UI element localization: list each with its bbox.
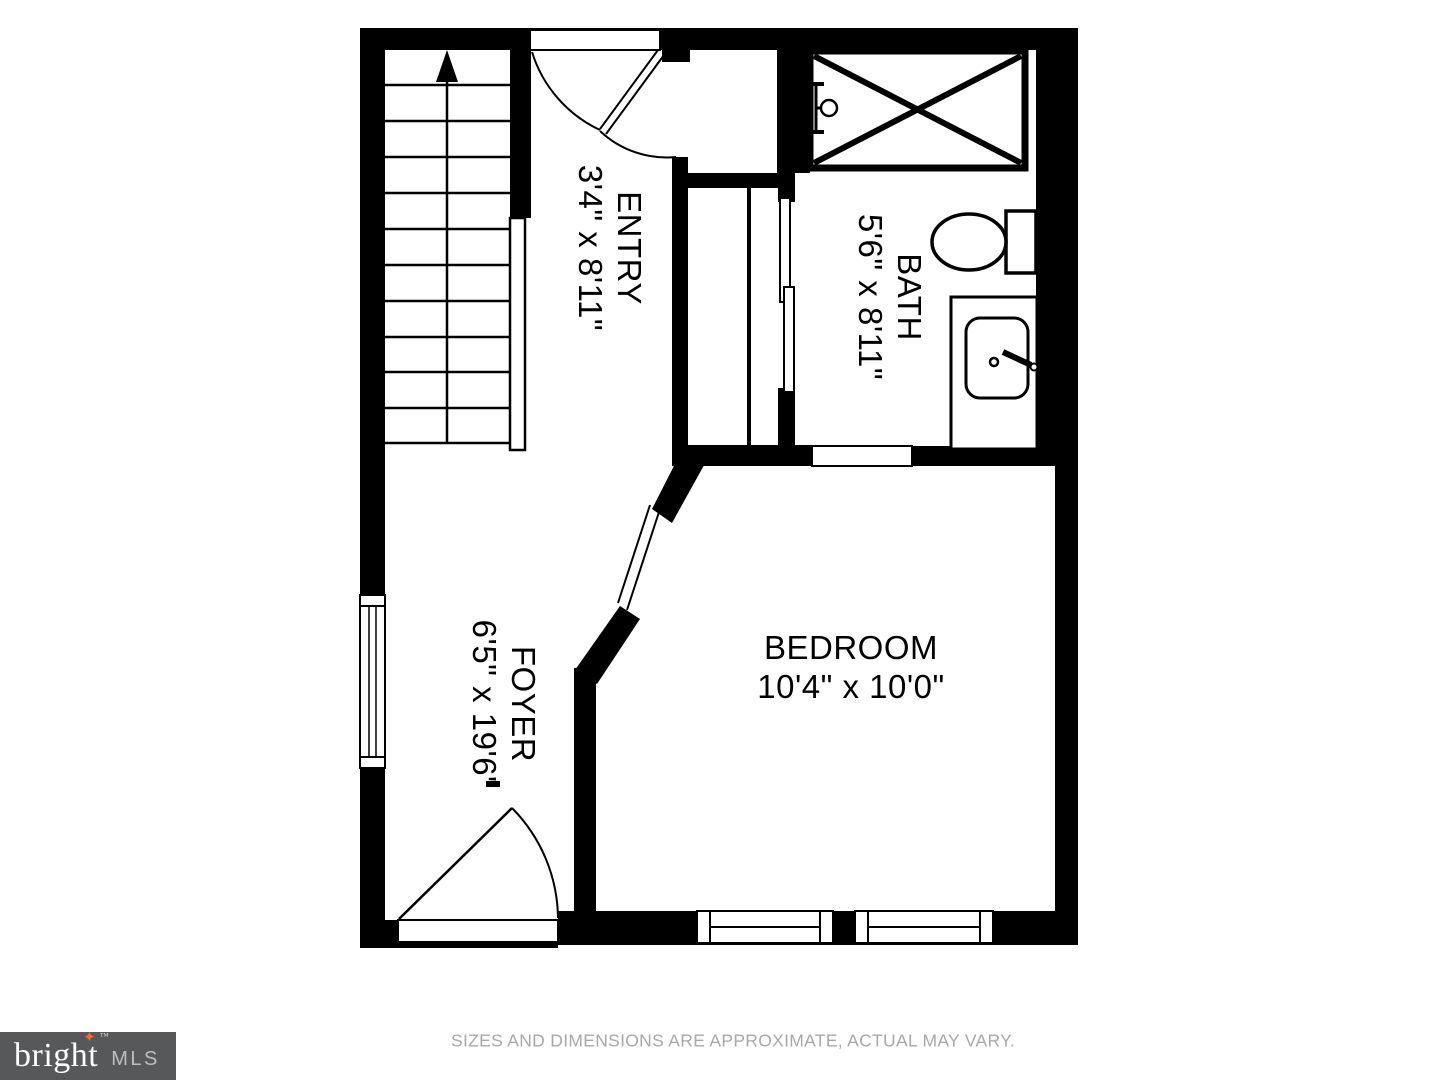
wall-nook-right-stub-bottom [778,388,795,445]
trademark-symbol: ™ [100,1032,109,1041]
foyer-door-arc [512,808,558,918]
stair-railing [510,218,525,450]
wall-foyer-bedroom-divider [574,668,596,920]
entry-door-opening [530,30,660,50]
wall-stair-divider [510,50,531,218]
entry-door-arc [532,52,600,130]
room-name: BATH [890,214,929,380]
foyer-door-leaf [399,808,512,919]
bath-room-label: BATH 5'6" x 8'11" [851,214,929,380]
wall-nook-top [672,173,795,188]
wall-entry-nook-divider [672,157,688,445]
room-dimensions: 6'5" x 19'6" [465,620,504,789]
wall-nook-split [747,188,751,445]
bedroom-window-right [855,911,993,943]
wall-top [360,28,1078,50]
room-name: BEDROOM [757,628,944,667]
bedroom-window-left [697,911,833,943]
room-dimensions: 5'6" x 8'11" [851,214,890,380]
floor-plan-drawing [0,0,1440,1080]
shower [808,51,1025,168]
foyer-door-threshold [398,920,558,942]
bedroom-room-label: BEDROOM 10'4" x 10'0" [757,628,944,706]
logo-brand-text: bright ✦ ™ [14,1039,98,1073]
logo-suffix-text: MLS [111,1042,160,1071]
toilet-icon [932,211,1036,273]
bath-fixtures [932,211,1038,449]
bath-door-opening [812,446,912,466]
entry-room-label: ENTRY 3'4" x 8'11" [571,165,649,331]
brightmls-logo: bright ✦ ™ MLS [0,1032,176,1080]
wall-right-bath [1036,28,1078,466]
room-dimensions: 10'4" x 10'0" [757,667,944,706]
staircase [385,50,525,450]
wall-entry-closet-stub [662,50,690,62]
room-name: FOYER [504,620,543,789]
wall-left [360,28,385,945]
entry-door-leaf [600,50,658,129]
foyer-window [360,595,385,768]
entry-door-leaf [606,55,664,134]
room-name: ENTRY [610,165,649,331]
sliding-closet-doors [780,198,794,392]
floor-plan-page: ENTRY 3'4" x 8'11" BATH 5'6" x 8'11" FOY… [0,0,1440,1080]
stairs-up-arrow-icon [436,50,458,443]
room-dimensions: 3'4" x 8'11" [571,165,610,331]
closet-door-arc [600,131,676,157]
wall-bottom-foyer [360,920,400,948]
four-point-star-icon: ✦ [83,1031,96,1046]
wall-right-bedroom [1055,466,1078,945]
disclaimer-text: SIZES AND DIMENSIONS ARE APPROXIMATE, AC… [451,1031,1015,1052]
foyer-room-label: FOYER 6'5" x 19'6" [465,620,543,789]
sink-vanity-icon [951,297,1038,449]
wall-closet-shower-divider [777,28,810,173]
wall-diagonal-upper [652,458,708,523]
